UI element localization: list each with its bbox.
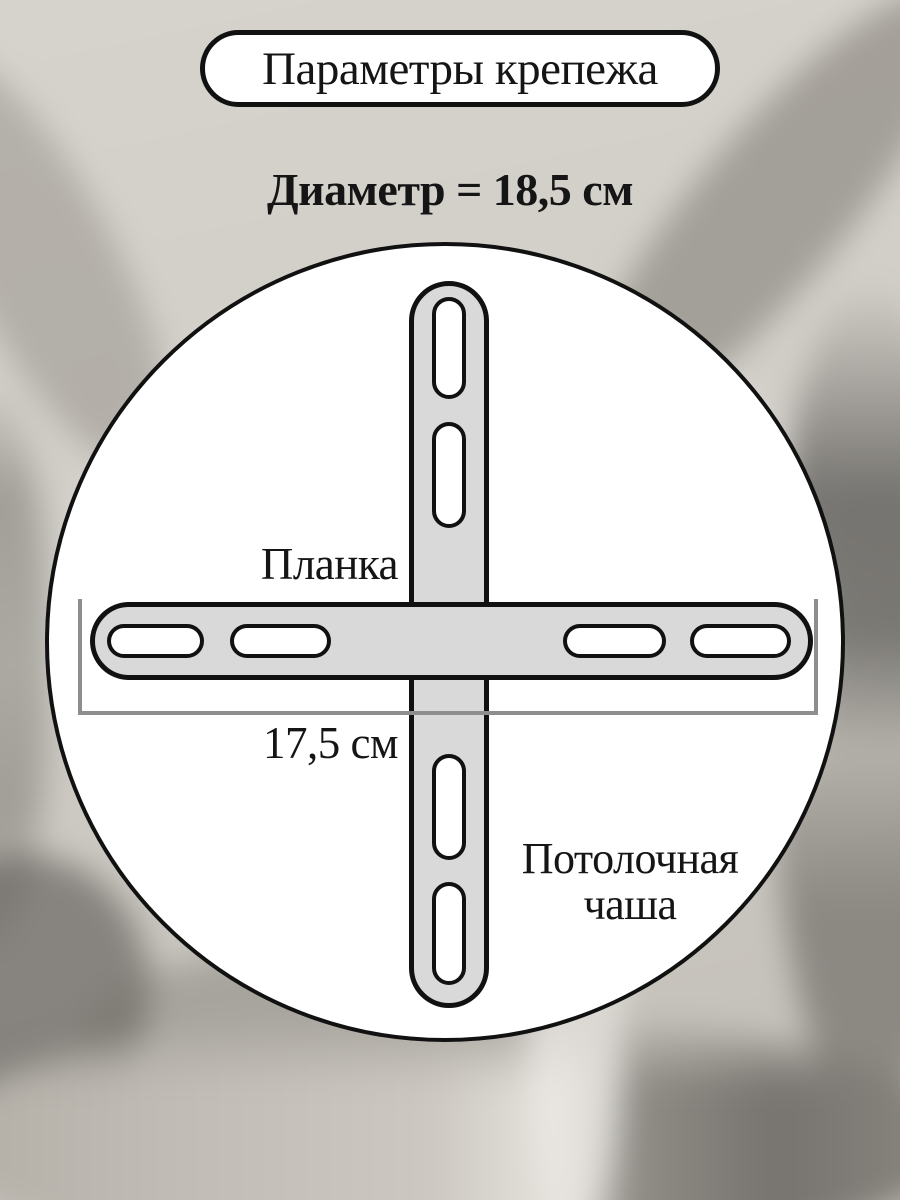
dimension-tick-right — [814, 599, 818, 715]
mounting-slot-top-inner — [432, 422, 466, 528]
mounting-slot-left-inner — [230, 624, 331, 658]
title-badge: Параметры крепежа — [200, 30, 720, 107]
dimension-line — [78, 711, 818, 715]
diameter-label: Диаметр = 18,5 см — [0, 163, 900, 216]
mounting-parameters-infographic: Параметры крепежа Диаметр = 18,5 см План… — [0, 0, 900, 1200]
ceiling-cup-label-line2: чаша — [460, 882, 800, 928]
mounting-slot-right-outer — [690, 624, 791, 658]
ceiling-cup-label-line1: Потолочная — [460, 836, 800, 882]
mounting-slot-top-outer — [432, 297, 466, 399]
plank-label: Планка — [148, 538, 398, 590]
ceiling-cup-label: Потолочная чаша — [460, 836, 800, 928]
plank-length-label: 17,5 см — [148, 717, 398, 769]
dimension-tick-left — [78, 599, 82, 715]
mounting-slot-right-inner — [563, 624, 666, 658]
mounting-slot-left-outer — [107, 624, 204, 658]
page-title: Параметры крепежа — [262, 42, 658, 96]
